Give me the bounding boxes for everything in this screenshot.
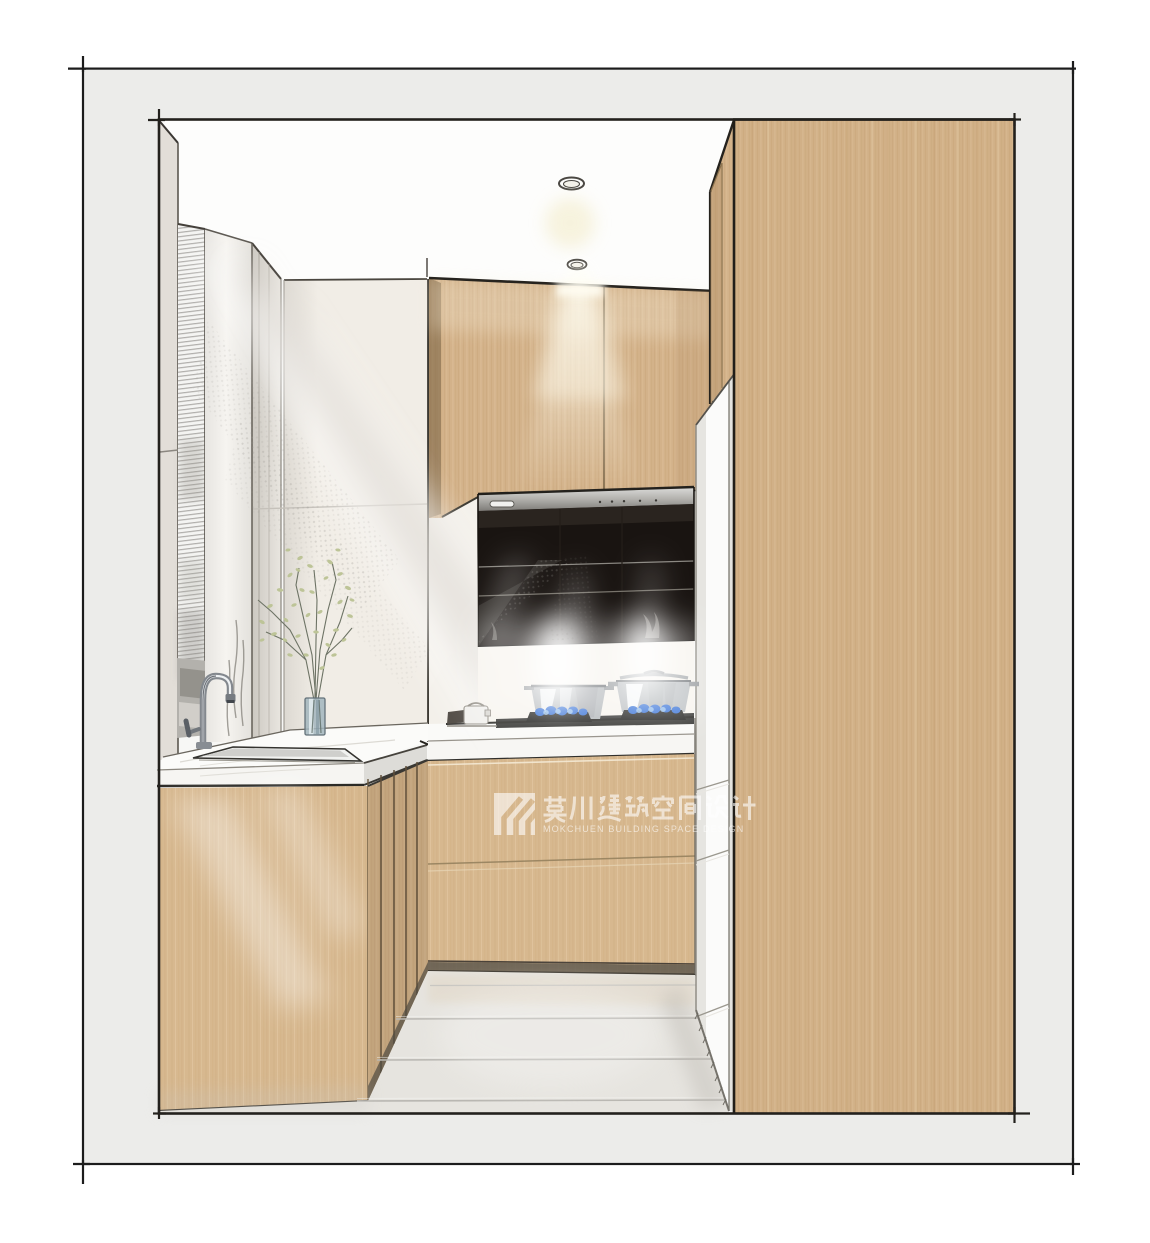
svg-text:MOKCHUEN BUILDING SPACE DESIGN: MOKCHUEN BUILDING SPACE DESIGN [543,824,744,834]
